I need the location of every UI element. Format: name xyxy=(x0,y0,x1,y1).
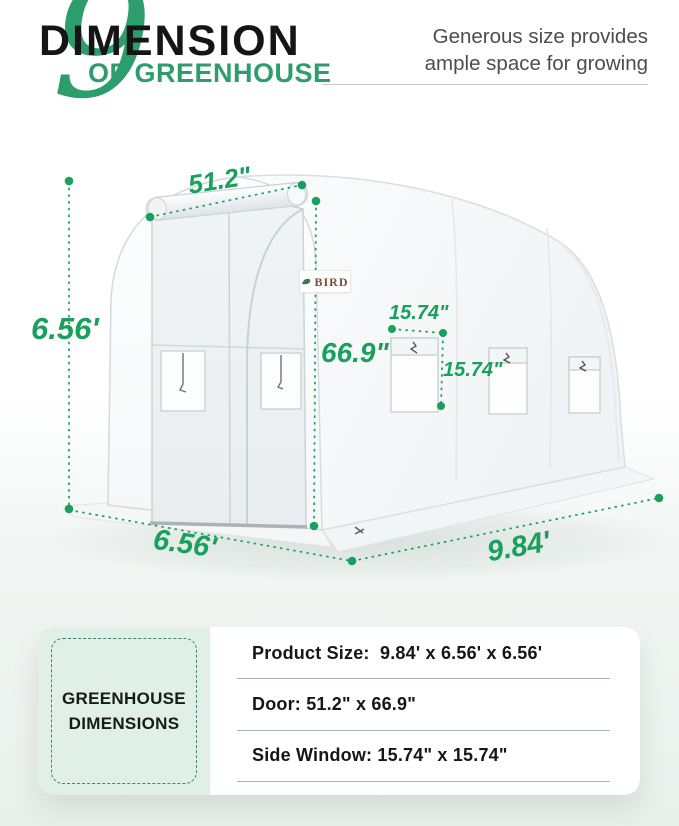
infographic-page: 9 DIMENSION OF GREENHOUSE Generous size … xyxy=(0,0,679,826)
door-window-left xyxy=(161,351,205,411)
dashed-title-box: GREENHOUSE DIMENSIONS xyxy=(51,638,197,784)
bird-logo-icon xyxy=(301,276,312,287)
side-window-3 xyxy=(569,357,600,413)
header: 9 DIMENSION OF GREENHOUSE Generous size … xyxy=(0,0,679,130)
page-subtitle: OF GREENHOUSE xyxy=(88,60,332,87)
side-window-2 xyxy=(489,348,527,414)
door-window-right xyxy=(261,353,301,409)
page-title: DIMENSION xyxy=(39,20,301,63)
spec-row-side-window: Side Window: 15.74" x 15.74" xyxy=(237,731,610,782)
brand-name: BIRD xyxy=(314,276,348,288)
side-window-1 xyxy=(391,338,438,412)
tagline-line-1: Generous size provides xyxy=(425,24,648,51)
brand-patch: BIRD xyxy=(299,270,351,293)
panel-specs-section: Product Size: 9.84' x 6.56' x 6.56' Door… xyxy=(210,627,640,795)
header-divider xyxy=(322,84,648,85)
door-center-seam xyxy=(229,202,230,525)
label-door-height: 66.9" xyxy=(321,339,389,367)
label-window-height: 15.74" xyxy=(443,360,503,380)
spec-row-door: Door: 51.2" x 66.9" xyxy=(237,679,610,730)
dimensions-summary-panel: GREENHOUSE DIMENSIONS Product Size: 9.84… xyxy=(38,627,640,795)
panel-title-section: GREENHOUSE DIMENSIONS xyxy=(38,627,210,795)
tagline: Generous size provides ample space for g… xyxy=(425,24,648,77)
label-window-width: 15.74" xyxy=(389,303,449,323)
box-title-line-1: GREENHOUSE xyxy=(62,686,186,712)
tagline-line-2: ample space for growing xyxy=(425,51,648,78)
box-title-line-2: DIMENSIONS xyxy=(69,711,180,737)
label-frame-height: 6.56' xyxy=(31,313,99,344)
spec-row-product-size: Product Size: 9.84' x 6.56' x 6.56' xyxy=(237,628,610,679)
